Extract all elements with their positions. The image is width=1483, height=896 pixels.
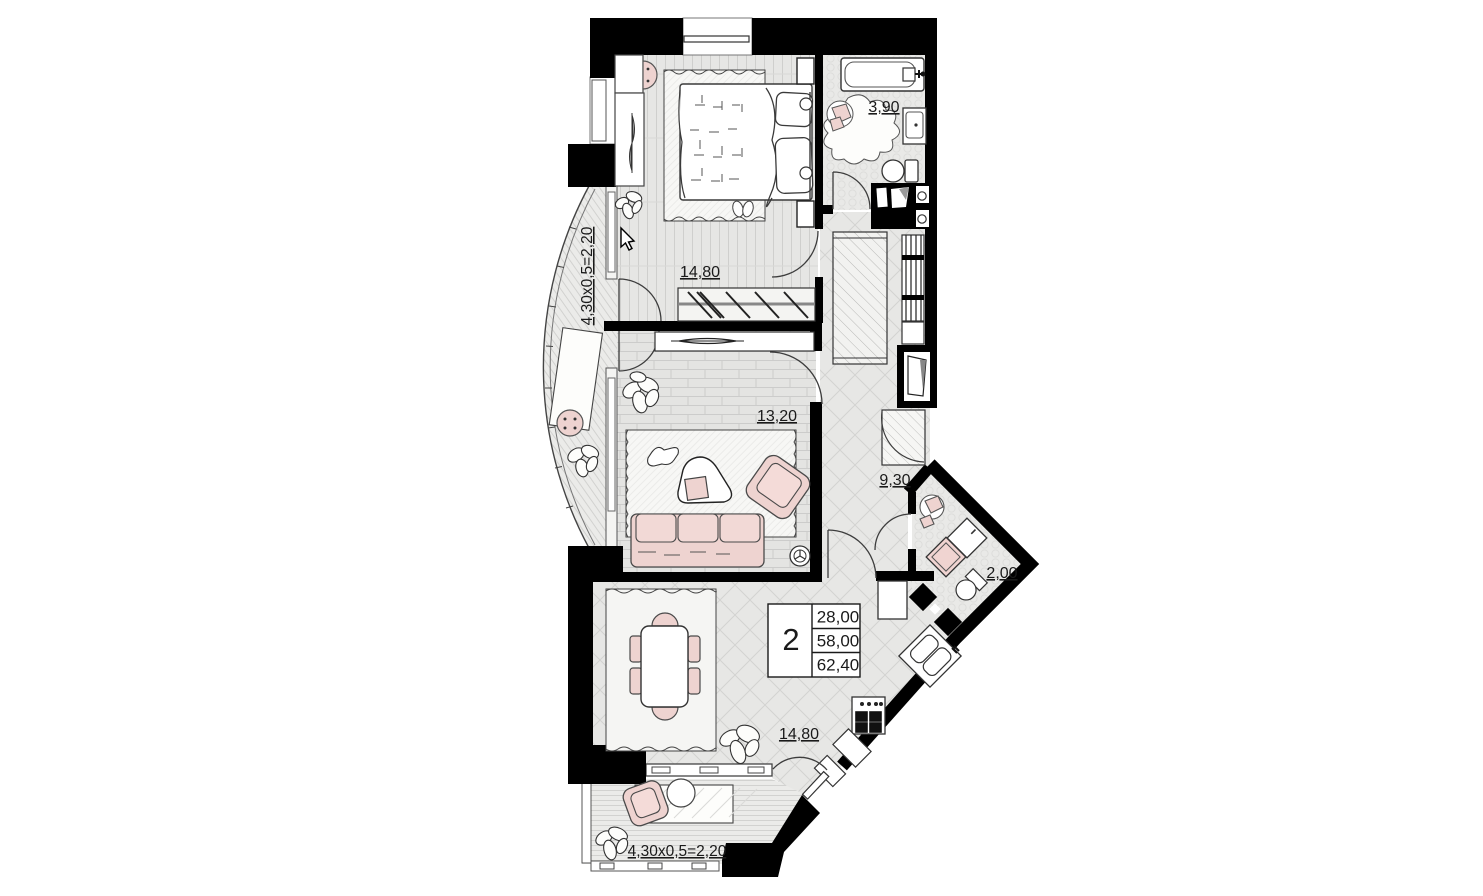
svg-text:62,40: 62,40 — [817, 656, 860, 675]
svg-text:28,00: 28,00 — [817, 608, 860, 627]
svg-text:14,80: 14,80 — [680, 264, 720, 281]
svg-text:2: 2 — [782, 622, 799, 657]
svg-text:2,00: 2,00 — [986, 565, 1017, 582]
svg-text:13,20: 13,20 — [757, 408, 797, 425]
svg-text:4,30x0,5=2,20: 4,30x0,5=2,20 — [628, 843, 727, 860]
svg-text:9,30: 9,30 — [879, 472, 910, 489]
svg-text:58,00: 58,00 — [817, 632, 860, 651]
svg-text:4,30x0,5=2,20: 4,30x0,5=2,20 — [579, 226, 596, 325]
svg-text:14,80: 14,80 — [779, 726, 819, 743]
svg-text:3,90: 3,90 — [868, 99, 899, 116]
